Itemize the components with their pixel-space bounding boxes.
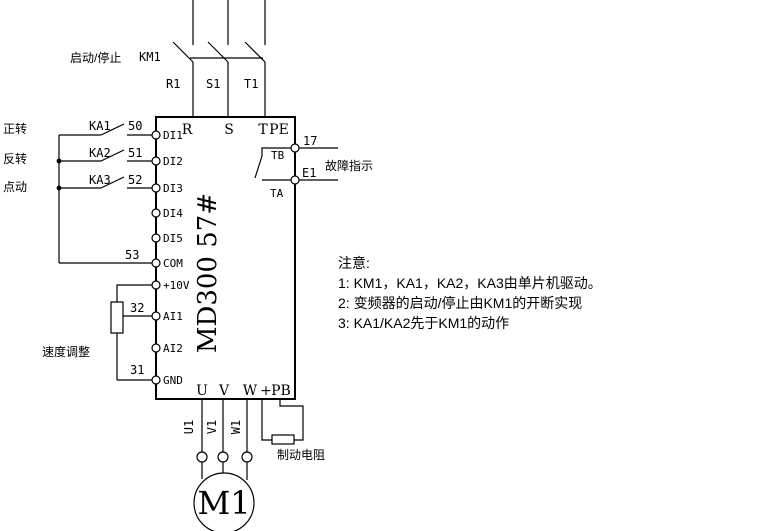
terminal-AI1 [152, 312, 160, 320]
terminal-DI4 [152, 209, 160, 217]
terminal-label-R: R [182, 122, 193, 138]
function-label-jog: 点动 [3, 180, 27, 194]
motor-connector-u [197, 452, 207, 462]
wire-number-E1: E1 [302, 166, 316, 180]
junction-dot [57, 159, 62, 164]
wire-number-31: 31 [130, 363, 144, 377]
terminal-label-DI5: DI5 [163, 232, 183, 245]
terminal-DI1 [152, 131, 160, 139]
terminal-label-U: U [196, 383, 208, 399]
wiring-diagram: 启动/停止 KM1 R1 S1 T1 MD300 57# R S T PE U … [0, 0, 759, 531]
digital-input-switches: KA1 KA2 KA3 50 51 52 53 正转 反转 点动 [3, 119, 152, 263]
terminal-label-COM: COM [163, 257, 183, 270]
junction-dot [57, 186, 62, 191]
terminal-10V [152, 281, 160, 289]
terminal-AI2 [152, 344, 160, 352]
terminal-label-DI4: DI4 [163, 207, 183, 220]
ka1-label: KA1 [89, 119, 111, 133]
note-item-2: 2: 变频器的启动/停止由KM1的开断实现 [338, 295, 582, 311]
terminal-label-T: T [258, 122, 268, 138]
fault-indicator-label: 故障指示 [325, 158, 373, 173]
contact-label-TB: TB [271, 149, 285, 162]
wire-number-32: 32 [130, 301, 144, 315]
km1-contact-blades [173, 42, 265, 62]
note-item-1: 1: KM1，KA1，KA2，KA3由单片机驱动。 [338, 275, 602, 291]
terminal-E1 [291, 176, 299, 184]
terminal-label-S: S [224, 122, 234, 138]
terminal-label-DI2: DI2 [163, 155, 183, 168]
wire-label-t1: T1 [244, 77, 258, 91]
wire-label-r1: R1 [166, 77, 180, 91]
terminal-COM [152, 259, 160, 267]
motor-connector-v [218, 452, 228, 462]
terminal-label-PE: PE [269, 122, 289, 138]
terminal-label-PB: PB [271, 383, 291, 399]
start-stop-label: 启动/停止 [70, 50, 121, 65]
motor-output: M1 U1 V1 W1 [182, 399, 254, 531]
terminal-label-DI1: DI1 [163, 129, 183, 142]
note-item-3: 3: KA1/KA2先于KM1的动作 [338, 315, 509, 331]
pot-resistor-body [111, 302, 123, 333]
wire-number-51: 51 [128, 146, 142, 160]
brake-resistor-label: 制动电阻 [277, 448, 325, 462]
terminal-label-AI2: AI2 [163, 342, 183, 355]
brake-resistor-body [272, 435, 294, 444]
km1-contactor: 启动/停止 KM1 R1 S1 T1 [70, 0, 265, 117]
terminal-label-W: W [243, 383, 258, 399]
inverter-model-label: MD300 57# [193, 193, 223, 353]
terminal-label-DI3: DI3 [163, 182, 183, 195]
braking-resistor: 制动电阻 [262, 399, 325, 462]
terminal-GND [152, 376, 160, 384]
terminal-label-AI1: AI1 [163, 310, 183, 323]
wire-number-17: 17 [303, 134, 317, 148]
brake-resistor-wires [262, 399, 303, 440]
function-label-reverse: 反转 [3, 151, 27, 166]
terminal-label-V: V [218, 383, 230, 399]
contact-label-TA: TA [270, 187, 284, 200]
notes: 注意: 1: KM1，KA1，KA2，KA3由单片机驱动。 2: 变频器的启动/… [338, 255, 602, 331]
ka3-label: KA3 [89, 173, 111, 187]
notes-title: 注意: [338, 255, 370, 271]
terminal-DI2 [152, 157, 160, 165]
motor-label: M1 [197, 484, 250, 522]
wire-number-53: 53 [125, 248, 139, 262]
wire-label-U1: U1 [182, 420, 196, 434]
terminal-label-10V: +10V [163, 279, 190, 292]
supply-wires [193, 0, 265, 45]
terminal-label-GND: GND [163, 374, 183, 387]
wire-label-W1: W1 [229, 420, 243, 434]
wire-label-V1: V1 [205, 420, 219, 434]
speed-adjust-label: 速度调整 [42, 344, 90, 359]
motor-connector-w [242, 452, 252, 462]
terminal-DI3 [152, 184, 160, 192]
terminal-label-plus: + [260, 383, 272, 399]
wire-number-52: 52 [128, 173, 142, 187]
wire-number-50: 50 [128, 119, 142, 133]
wire-label-s1: S1 [206, 77, 220, 91]
ka2-label: KA2 [89, 146, 111, 160]
terminal-17 [291, 144, 299, 152]
km1-label: KM1 [139, 50, 161, 64]
terminal-DI5 [152, 234, 160, 242]
function-label-forward: 正转 [3, 121, 27, 136]
speed-potentiometer: 32 31 速度调整 [42, 285, 152, 380]
